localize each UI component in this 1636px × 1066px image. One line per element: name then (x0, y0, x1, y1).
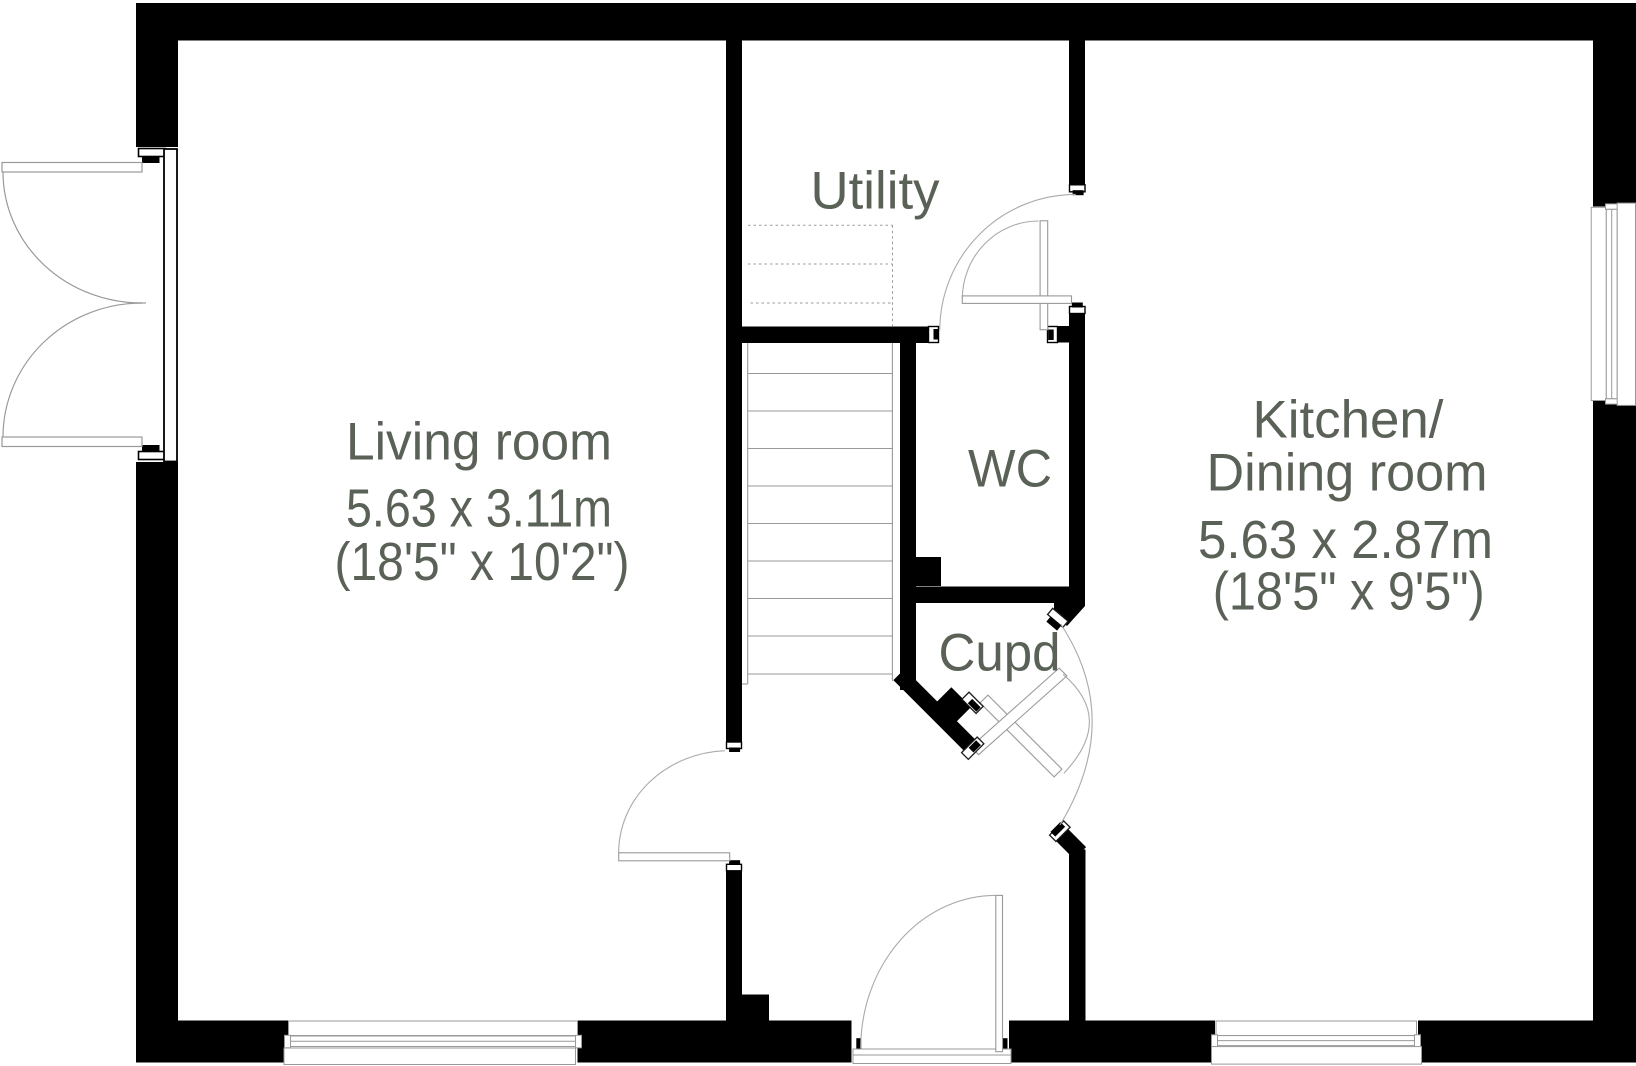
svg-text:Utility: Utility (811, 162, 940, 221)
svg-text:(18'5" x 9'5"): (18'5" x 9'5") (1213, 561, 1485, 621)
svg-text:Cupd: Cupd (939, 624, 1061, 683)
svg-text:WC: WC (968, 440, 1052, 499)
svg-text:(18'5" x 10'2"): (18'5" x 10'2") (335, 532, 630, 592)
svg-text:Living room: Living room (346, 413, 612, 472)
svg-text:Dining room: Dining room (1207, 443, 1488, 502)
svg-text:5.63 x 3.11m: 5.63 x 3.11m (346, 479, 612, 539)
svg-text:Kitchen/: Kitchen/ (1253, 391, 1444, 450)
